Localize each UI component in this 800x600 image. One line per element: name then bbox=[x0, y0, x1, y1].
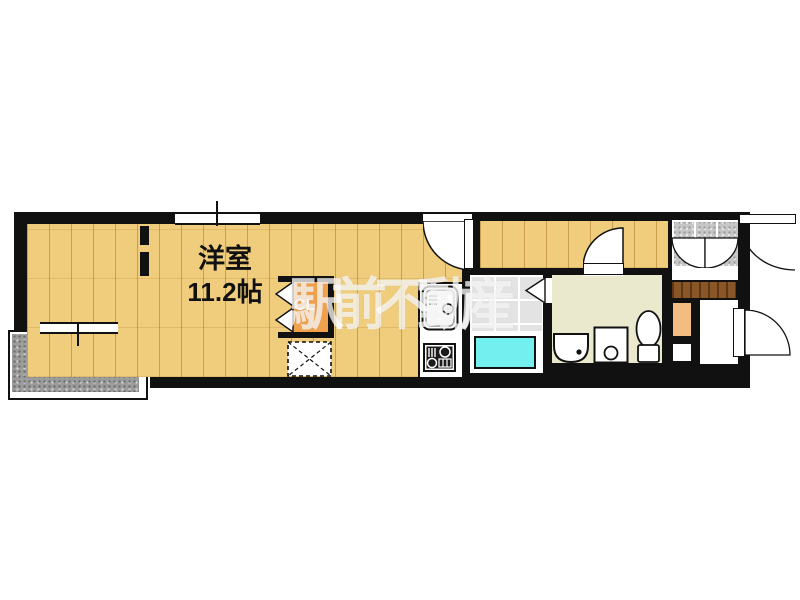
corridor-floor bbox=[480, 221, 668, 268]
entrance-step bbox=[672, 302, 692, 337]
entrance-door-leaf bbox=[733, 308, 745, 357]
closet-bifold-door bbox=[672, 237, 738, 269]
washing-machine-space bbox=[593, 326, 629, 364]
wall-stub bbox=[140, 226, 149, 245]
bathtub bbox=[474, 336, 536, 369]
sanitary-door-leaf bbox=[583, 263, 624, 275]
bathroom-folding-door bbox=[524, 277, 546, 304]
balcony-window-tick bbox=[77, 322, 79, 346]
exterior-door bbox=[741, 224, 797, 271]
balcony-window bbox=[40, 322, 118, 334]
room-name: 洋室 bbox=[155, 243, 295, 276]
refrigerator-space bbox=[286, 340, 333, 378]
entrance-door bbox=[745, 310, 792, 357]
floor-plan: バルコニー 洋室 11.2帖 CL bbox=[0, 0, 800, 600]
washbasin bbox=[552, 332, 590, 365]
shoe-cabinet bbox=[670, 280, 738, 300]
toilet bbox=[634, 308, 663, 364]
gas-stove bbox=[423, 343, 456, 372]
hall-strip bbox=[672, 268, 738, 280]
exterior-door-leaf bbox=[739, 214, 796, 224]
window-center-tick bbox=[216, 201, 218, 226]
watermark: 駅前不動産 bbox=[288, 277, 503, 333]
room-door-leaf bbox=[464, 219, 474, 269]
wall-stub bbox=[140, 252, 149, 276]
small-compartment bbox=[672, 343, 692, 362]
